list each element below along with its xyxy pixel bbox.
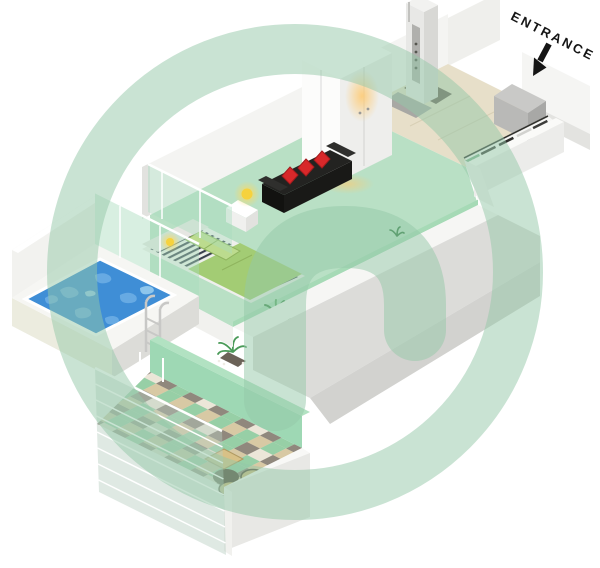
entrance-label: ENTRANCE [509,8,598,63]
floor-plan-scene: ENTRANCE [0,0,600,568]
wall-lamp [166,238,174,246]
table-lamp [242,189,253,200]
floor-plan-canvas: ENTRANCE [0,0,600,568]
